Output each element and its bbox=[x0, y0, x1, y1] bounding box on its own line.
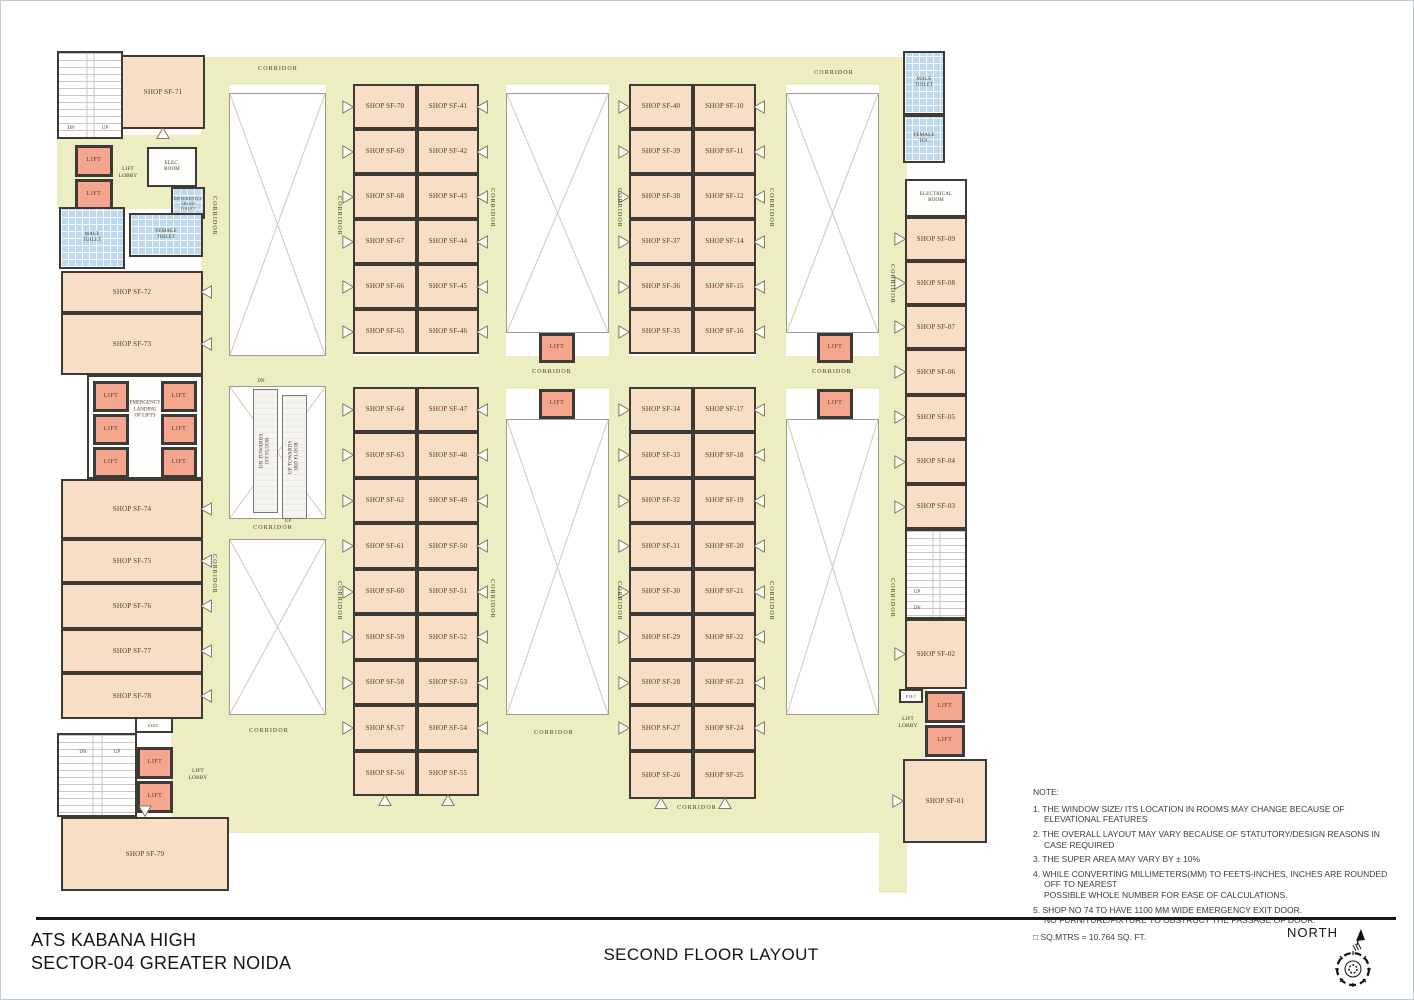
room-lift: LIFT bbox=[93, 414, 129, 445]
room-label: SHOP SF-73 bbox=[63, 315, 201, 373]
room-shop-sf-41: SHOP SF-41 bbox=[417, 84, 479, 129]
room-shop-sf-42: SHOP SF-42 bbox=[417, 129, 479, 174]
atrium-void bbox=[786, 93, 879, 333]
room-shop-sf-32: SHOP SF-32 bbox=[629, 478, 693, 523]
room-label: SHOP SF-31 bbox=[631, 525, 691, 567]
room-female-toilet: FEMALE TOILET bbox=[129, 213, 203, 257]
room-lift: LIFT bbox=[925, 725, 965, 757]
room-label: SHOP SF-36 bbox=[631, 266, 691, 307]
title-separator bbox=[36, 917, 1396, 920]
room-shop-sf-44: SHOP SF-44 bbox=[417, 219, 479, 264]
room-label: SHOP SF-69 bbox=[355, 131, 415, 172]
room-shop-sf-39: SHOP SF-39 bbox=[629, 129, 693, 174]
room-label: LIFT bbox=[542, 336, 572, 360]
door-swing-icon bbox=[753, 720, 767, 736]
room-label: MALE TOILET bbox=[905, 53, 943, 113]
room-shop-sf-77: SHOP SF-77 bbox=[61, 629, 203, 673]
corridor-area bbox=[479, 57, 506, 823]
room-male-toilet: MALE TOILET bbox=[59, 207, 125, 269]
door-swing-icon bbox=[618, 324, 632, 340]
room-label: SHOP SF-07 bbox=[907, 307, 965, 347]
room-shop-sf-40: SHOP SF-40 bbox=[629, 84, 693, 129]
room-elec: ELEC. bbox=[135, 717, 173, 733]
room-shop-sf-75: SHOP SF-75 bbox=[61, 539, 203, 583]
room-label: SHOP SF-76 bbox=[63, 585, 201, 627]
door-swing-icon bbox=[378, 793, 392, 809]
room-label: LIFT bbox=[96, 450, 126, 475]
room-shop-sf-50: SHOP SF-50 bbox=[417, 523, 479, 569]
note-item: 4. WHILE CONVERTING MILLIMETERS(MM) TO F… bbox=[1033, 869, 1393, 901]
note-item: 1. THE WINDOW SIZE/ ITS LOCATION IN ROOM… bbox=[1033, 804, 1393, 825]
room-label: SHOP SF-14 bbox=[695, 221, 754, 262]
room-label: SHOP SF-59 bbox=[355, 616, 415, 658]
door-swing-icon bbox=[476, 189, 490, 205]
room-label: SHOP SF-56 bbox=[355, 753, 415, 794]
room-label: LIFT bbox=[928, 694, 962, 720]
door-swing-icon bbox=[342, 402, 356, 418]
door-swing-icon bbox=[200, 336, 214, 352]
room-shop-sf-54: SHOP SF-54 bbox=[417, 705, 479, 751]
door-swing-icon bbox=[753, 99, 767, 115]
room-label: F.H.C bbox=[901, 691, 921, 701]
room-label: ELECTRICAL ROOM bbox=[907, 181, 965, 215]
room-shop-sf-09: SHOP SF-09 bbox=[905, 217, 967, 261]
room-shop-sf-56: SHOP SF-56 bbox=[353, 751, 417, 796]
room-label: SHOP SF-27 bbox=[631, 707, 691, 749]
door-swing-icon bbox=[342, 538, 356, 554]
room-shop-sf-71: SHOP SF-71 bbox=[121, 55, 205, 129]
room-shop-sf-46: SHOP SF-46 bbox=[417, 309, 479, 354]
room-label: SHOP SF-37 bbox=[631, 221, 691, 262]
door-swing-icon bbox=[476, 234, 490, 250]
escalator: DN TOWARDS 1ST FLOOR bbox=[253, 389, 278, 513]
room-label: SHOP SF-54 bbox=[419, 707, 477, 749]
room-label: SHOP SF-09 bbox=[907, 219, 965, 259]
north-indicator: NORTH bbox=[1271, 923, 1401, 997]
room-shop-sf-58: SHOP SF-58 bbox=[353, 660, 417, 705]
room-shop-sf-04: SHOP SF-04 bbox=[905, 439, 967, 484]
door-swing-icon bbox=[753, 324, 767, 340]
door-swing-icon bbox=[894, 454, 908, 470]
corridor-area bbox=[756, 57, 786, 823]
room-lift: LIFT bbox=[161, 414, 197, 445]
room-label: SHOP SF-02 bbox=[907, 621, 965, 687]
room-shop-sf-49: SHOP SF-49 bbox=[417, 478, 479, 523]
door-swing-icon bbox=[753, 189, 767, 205]
room-label: SHOP SF-19 bbox=[695, 480, 754, 521]
room-label: SHOP SF-71 bbox=[123, 57, 203, 127]
room-shop-sf-78: SHOP SF-78 bbox=[61, 673, 203, 719]
north-compass-icon bbox=[1323, 927, 1389, 993]
room-shop-sf-36: SHOP SF-36 bbox=[629, 264, 693, 309]
room-label: SHOP SF-70 bbox=[355, 86, 415, 127]
door-swing-icon bbox=[753, 584, 767, 600]
note-item: 2. THE OVERALL LAYOUT MAY VARY BECAUSE O… bbox=[1033, 829, 1393, 850]
room-label: FEMALE TOILET bbox=[131, 215, 201, 255]
room-label: SHOP SF-18 bbox=[695, 434, 754, 476]
room-shop-sf-33: SHOP SF-33 bbox=[629, 432, 693, 478]
room-label: SHOP SF-04 bbox=[907, 441, 965, 482]
room-label: SHOP SF-58 bbox=[355, 662, 415, 703]
room-lift: LIFT bbox=[817, 389, 853, 419]
room-shop-sf-30: SHOP SF-30 bbox=[629, 569, 693, 614]
room-label: SHOP SF-10 bbox=[695, 86, 754, 127]
door-swing-icon bbox=[618, 402, 632, 418]
corridor-area bbox=[609, 57, 629, 823]
escalator: UP TOWARDS 3RD FLOOR bbox=[282, 395, 307, 519]
room-elec-room: ELEC. ROOM bbox=[147, 147, 197, 187]
room-lift: LIFT bbox=[925, 691, 965, 723]
room-shop-sf-69: SHOP SF-69 bbox=[353, 129, 417, 174]
room-label: SHOP SF-30 bbox=[631, 571, 691, 612]
corridor-label: CORRIDOR bbox=[889, 578, 895, 618]
room-label: SHOP SF-16 bbox=[695, 311, 754, 352]
room-label: SHOP SF-78 bbox=[63, 675, 201, 717]
room-label: SHOP SF-50 bbox=[419, 525, 477, 567]
room-label: SHOP SF-35 bbox=[631, 311, 691, 352]
corridor-label: CORRIDOR bbox=[889, 264, 895, 304]
room-shop-sf-48: SHOP SF-48 bbox=[417, 432, 479, 478]
door-swing-icon bbox=[618, 629, 632, 645]
door-swing-icon bbox=[894, 319, 908, 335]
room-label: SHOP SF-17 bbox=[695, 389, 754, 430]
room-label: SHOP SF-22 bbox=[695, 616, 754, 658]
room-label: SHOP SF-25 bbox=[695, 753, 754, 797]
room-shop-sf-17: SHOP SF-17 bbox=[693, 387, 756, 432]
corridor-label: CORRIDOR bbox=[532, 369, 572, 375]
room-lift: LIFT bbox=[539, 389, 575, 419]
room-label: LIFT bbox=[96, 384, 126, 409]
room-label: MALE TOILET bbox=[61, 209, 123, 267]
atrium-void bbox=[786, 419, 879, 715]
room-label: SHOP SF-67 bbox=[355, 221, 415, 262]
door-swing-icon bbox=[200, 501, 214, 517]
room-label: SHOP SF-33 bbox=[631, 434, 691, 476]
room-shop-sf-22: SHOP SF-22 bbox=[693, 614, 756, 660]
room-lift: LIFT bbox=[75, 145, 113, 177]
room-label: SHOP SF-74 bbox=[63, 481, 201, 537]
room-label: SHOP SF-06 bbox=[907, 351, 965, 393]
room-shop-sf-03: SHOP SF-03 bbox=[905, 484, 967, 529]
corridor-label: CORRIDOR bbox=[211, 196, 217, 236]
room-label: SHOP SF-61 bbox=[355, 525, 415, 567]
room-shop-sf-34: SHOP SF-34 bbox=[629, 387, 693, 432]
door-swing-icon bbox=[200, 284, 214, 300]
notes-list: 1. THE WINDOW SIZE/ ITS LOCATION IN ROOM… bbox=[1033, 804, 1393, 926]
door-swing-icon bbox=[342, 493, 356, 509]
room-shop-sf-45: SHOP SF-45 bbox=[417, 264, 479, 309]
door-swing-icon bbox=[618, 99, 632, 115]
room-f-h-c: F.H.C bbox=[899, 689, 923, 703]
plan-label-up: UP bbox=[914, 590, 920, 597]
room-label: SHOP SF-34 bbox=[631, 389, 691, 430]
room-label: LIFT bbox=[164, 384, 194, 409]
room-shop-sf-61: SHOP SF-61 bbox=[353, 523, 417, 569]
room-label: SHOP SF-68 bbox=[355, 176, 415, 217]
room-shop-sf-02: SHOP SF-02 bbox=[905, 619, 967, 689]
room-label: SHOP SF-23 bbox=[695, 662, 754, 703]
corridor-area bbox=[201, 57, 907, 85]
door-swing-icon bbox=[894, 364, 908, 380]
door-swing-icon bbox=[753, 234, 767, 250]
room-label: SHOP SF-45 bbox=[419, 266, 477, 307]
corridor-label: CORRIDOR bbox=[249, 728, 289, 734]
door-swing-icon bbox=[618, 447, 632, 463]
room-label: SHOP SF-15 bbox=[695, 266, 754, 307]
door-swing-icon bbox=[753, 144, 767, 160]
room-shop-sf-28: SHOP SF-28 bbox=[629, 660, 693, 705]
door-swing-icon bbox=[894, 499, 908, 515]
room-lift: LIFT bbox=[817, 333, 853, 363]
room-shop-sf-16: SHOP SF-16 bbox=[693, 309, 756, 354]
door-swing-icon bbox=[618, 144, 632, 160]
room-label: LIFT bbox=[542, 392, 572, 416]
room-label: LIFT bbox=[78, 182, 110, 208]
room-shop-sf-43: SHOP SF-43 bbox=[417, 174, 479, 219]
corridor-label: CORRIDOR bbox=[812, 369, 852, 375]
door-swing-icon bbox=[753, 538, 767, 554]
door-swing-icon bbox=[894, 646, 908, 662]
room-shop-sf-64: SHOP SF-64 bbox=[353, 387, 417, 432]
door-swing-icon bbox=[894, 231, 908, 247]
room-shop-sf-25: SHOP SF-25 bbox=[693, 751, 756, 799]
room-label: ELEC. ROOM bbox=[149, 149, 195, 185]
room-label: ELEC. bbox=[137, 719, 171, 731]
door-swing-icon bbox=[156, 126, 170, 142]
room-label: SHOP SF-55 bbox=[419, 753, 477, 794]
room-shop-sf-18: SHOP SF-18 bbox=[693, 432, 756, 478]
room-shop-sf-15: SHOP SF-15 bbox=[693, 264, 756, 309]
room-label: SHOP SF-77 bbox=[63, 631, 201, 671]
room-label: SHOP SF-26 bbox=[631, 753, 691, 797]
corridor-label: CORRIDOR bbox=[253, 525, 293, 531]
door-swing-icon bbox=[753, 493, 767, 509]
room-shop-sf-55: SHOP SF-55 bbox=[417, 751, 479, 796]
door-swing-icon bbox=[618, 538, 632, 554]
door-swing-icon bbox=[476, 447, 490, 463]
room-shop-sf-65: SHOP SF-65 bbox=[353, 309, 417, 354]
room-label: SHOP SF-12 bbox=[695, 176, 754, 217]
room-label: SHOP SF-60 bbox=[355, 571, 415, 612]
room-label: SHOP SF-43 bbox=[419, 176, 477, 217]
room-shop-sf-08: SHOP SF-08 bbox=[905, 261, 967, 305]
room-label: LIFT bbox=[164, 450, 194, 475]
room-shop-sf-63: SHOP SF-63 bbox=[353, 432, 417, 478]
room-label: SHOP SF-40 bbox=[631, 86, 691, 127]
room-electrical-room: ELECTRICAL ROOM bbox=[905, 179, 967, 217]
room-shop-sf-24: SHOP SF-24 bbox=[693, 705, 756, 751]
door-swing-icon bbox=[342, 720, 356, 736]
room-female-toi: FEMALE TOI. bbox=[903, 115, 945, 163]
room-label: LIFT bbox=[78, 148, 110, 174]
room-shop-sf-05: SHOP SF-05 bbox=[905, 395, 967, 439]
note-item: 3. THE SUPER AREA MAY VARY BY ± 10% bbox=[1033, 854, 1393, 865]
room-label: SHOP SF-01 bbox=[905, 761, 985, 841]
room-male-toilet: MALE TOILET bbox=[903, 51, 945, 115]
room-label: SHOP SF-65 bbox=[355, 311, 415, 352]
room-shop-sf-76: SHOP SF-76 bbox=[61, 583, 203, 629]
room-label: SHOP SF-46 bbox=[419, 311, 477, 352]
plan-label-lift: LIFT LOBBY bbox=[189, 768, 208, 782]
corridor-label: CORRIDOR bbox=[534, 730, 574, 736]
room-shop-sf-10: SHOP SF-10 bbox=[693, 84, 756, 129]
room-shop-sf-47: SHOP SF-47 bbox=[417, 387, 479, 432]
plan-label-dn: DN bbox=[257, 379, 264, 386]
room-shop-sf-20: SHOP SF-20 bbox=[693, 523, 756, 569]
plan-label-lift: LIFT LOBBY bbox=[899, 716, 918, 730]
room-label: FEMALE TOI. bbox=[905, 117, 943, 161]
door-swing-icon bbox=[476, 279, 490, 295]
corridor-label: CORRIDOR bbox=[336, 196, 342, 236]
corridor-label: CORRIDOR bbox=[768, 581, 774, 621]
room-shop-sf-66: SHOP SF-66 bbox=[353, 264, 417, 309]
room-lift: LIFT bbox=[161, 447, 197, 478]
corridor-label: CORRIDOR bbox=[677, 805, 717, 811]
room-label: SHOP SF-57 bbox=[355, 707, 415, 749]
room-label: LIFT bbox=[164, 417, 194, 442]
room-shop-sf-21: SHOP SF-21 bbox=[693, 569, 756, 614]
room-label: SHOP SF-28 bbox=[631, 662, 691, 703]
door-swing-icon bbox=[476, 402, 490, 418]
room-label: SHOP SF-24 bbox=[695, 707, 754, 749]
atrium-void bbox=[229, 539, 326, 715]
project-title: ATS KABANA HIGH SECTOR-04 GREATER NOIDA bbox=[31, 929, 291, 976]
room-label: SHOP SF-08 bbox=[907, 263, 965, 303]
door-swing-icon bbox=[476, 144, 490, 160]
room-shop-sf-11: SHOP SF-11 bbox=[693, 129, 756, 174]
room-shop-sf-19: SHOP SF-19 bbox=[693, 478, 756, 523]
room-lift: LIFT bbox=[93, 381, 129, 412]
corridor-label: CORRIDOR bbox=[489, 579, 495, 619]
door-swing-icon bbox=[476, 720, 490, 736]
room-label: SHOP SF-47 bbox=[419, 389, 477, 430]
room-shop-sf-62: SHOP SF-62 bbox=[353, 478, 417, 523]
room-label: SHOP SF-11 bbox=[695, 131, 754, 172]
room-label: SHOP SF-29 bbox=[631, 616, 691, 658]
room-shop-sf-07: SHOP SF-07 bbox=[905, 305, 967, 349]
door-swing-icon bbox=[753, 447, 767, 463]
floor-plan-sheet: DN TOWARDS 1ST FLOORUP TOWARDS 3RD FLOOR… bbox=[0, 0, 1414, 1000]
corridor-label: CORRIDOR bbox=[768, 188, 774, 228]
door-swing-icon bbox=[618, 234, 632, 250]
plan-label-up: UP bbox=[285, 519, 291, 526]
room-label: SHOP SF-75 bbox=[63, 541, 201, 581]
room-label: SHOP SF-64 bbox=[355, 389, 415, 430]
corridor-label: CORRIDOR bbox=[336, 581, 342, 621]
staircase-bottom-left bbox=[57, 733, 137, 817]
room-shop-sf-12: SHOP SF-12 bbox=[693, 174, 756, 219]
door-swing-icon bbox=[342, 279, 356, 295]
room-lift: LIFT bbox=[93, 447, 129, 478]
room-shop-sf-01: SHOP SF-01 bbox=[903, 759, 987, 843]
corridor-label: CORRIDOR bbox=[814, 70, 854, 76]
room-shop-sf-72: SHOP SF-72 bbox=[61, 271, 203, 313]
plan-label-emergency: EMERGENCY LANDING OF LIFTS bbox=[129, 400, 160, 420]
room-shop-sf-60: SHOP SF-60 bbox=[353, 569, 417, 614]
door-swing-icon bbox=[342, 675, 356, 691]
room-shop-sf-27: SHOP SF-27 bbox=[629, 705, 693, 751]
room-label: LIFT bbox=[820, 392, 850, 416]
room-label: SHOP SF-66 bbox=[355, 266, 415, 307]
room-shop-sf-57: SHOP SF-57 bbox=[353, 705, 417, 751]
escalator-label: DN TOWARDS 1ST FLOOR bbox=[254, 390, 277, 512]
door-swing-icon bbox=[342, 324, 356, 340]
room-shop-sf-74: SHOP SF-74 bbox=[61, 479, 203, 539]
plan-label-lift: LIFT LOBBY bbox=[119, 166, 138, 180]
room-shop-sf-26: SHOP SF-26 bbox=[629, 751, 693, 799]
plan-label-dn: DN bbox=[67, 126, 74, 133]
room-shop-sf-35: SHOP SF-35 bbox=[629, 309, 693, 354]
room-label: SHOP SF-21 bbox=[695, 571, 754, 612]
room-shop-sf-51: SHOP SF-51 bbox=[417, 569, 479, 614]
door-swing-icon bbox=[342, 584, 356, 600]
door-swing-icon bbox=[618, 493, 632, 509]
room-label: SHOP SF-51 bbox=[419, 571, 477, 612]
escalator-label: UP TOWARDS 3RD FLOOR bbox=[283, 396, 306, 518]
door-swing-icon bbox=[654, 796, 668, 812]
room-shop-sf-14: SHOP SF-14 bbox=[693, 219, 756, 264]
room-shop-sf-70: SHOP SF-70 bbox=[353, 84, 417, 129]
door-swing-icon bbox=[342, 189, 356, 205]
room-label: SHOP SF-05 bbox=[907, 397, 965, 437]
door-swing-icon bbox=[342, 234, 356, 250]
door-swing-icon bbox=[718, 796, 732, 812]
door-swing-icon bbox=[892, 793, 906, 809]
room-label: SHOP SF-62 bbox=[355, 480, 415, 521]
door-swing-icon bbox=[894, 275, 908, 291]
door-swing-icon bbox=[342, 629, 356, 645]
room-label: LIFT bbox=[820, 336, 850, 360]
door-swing-icon bbox=[476, 493, 490, 509]
room-label: SHOP SF-44 bbox=[419, 221, 477, 262]
room-label: LIFT bbox=[96, 417, 126, 442]
plan-label-up: UP bbox=[102, 126, 108, 133]
atrium-void bbox=[506, 419, 609, 715]
door-swing-icon bbox=[618, 720, 632, 736]
corridor-label: CORRIDOR bbox=[489, 188, 495, 228]
door-swing-icon bbox=[200, 598, 214, 614]
door-swing-icon bbox=[476, 99, 490, 115]
room-shop-sf-53: SHOP SF-53 bbox=[417, 660, 479, 705]
door-swing-icon bbox=[342, 144, 356, 160]
room-shop-sf-38: SHOP SF-38 bbox=[629, 174, 693, 219]
room-shop-sf-29: SHOP SF-29 bbox=[629, 614, 693, 660]
door-swing-icon bbox=[342, 447, 356, 463]
door-swing-icon bbox=[753, 675, 767, 691]
door-swing-icon bbox=[476, 584, 490, 600]
room-label: SHOP SF-03 bbox=[907, 486, 965, 527]
room-shop-sf-52: SHOP SF-52 bbox=[417, 614, 479, 660]
room-label: SHOP SF-49 bbox=[419, 480, 477, 521]
door-swing-icon bbox=[618, 279, 632, 295]
door-swing-icon bbox=[753, 279, 767, 295]
door-swing-icon bbox=[753, 402, 767, 418]
room-shop-sf-23: SHOP SF-23 bbox=[693, 660, 756, 705]
door-swing-icon bbox=[894, 409, 908, 425]
door-swing-icon bbox=[441, 793, 455, 809]
atrium-void bbox=[229, 93, 326, 356]
project-name: ATS KABANA HIGH bbox=[31, 929, 291, 952]
room-label: LIFT bbox=[928, 728, 962, 754]
room-shop-sf-37: SHOP SF-37 bbox=[629, 219, 693, 264]
atrium-void bbox=[506, 93, 609, 333]
door-swing-icon bbox=[618, 675, 632, 691]
room-label: SHOP SF-79 bbox=[63, 819, 227, 889]
room-label: SHOP SF-20 bbox=[695, 525, 754, 567]
room-shop-sf-59: SHOP SF-59 bbox=[353, 614, 417, 660]
room-label: SHOP SF-42 bbox=[419, 131, 477, 172]
door-swing-icon bbox=[342, 99, 356, 115]
